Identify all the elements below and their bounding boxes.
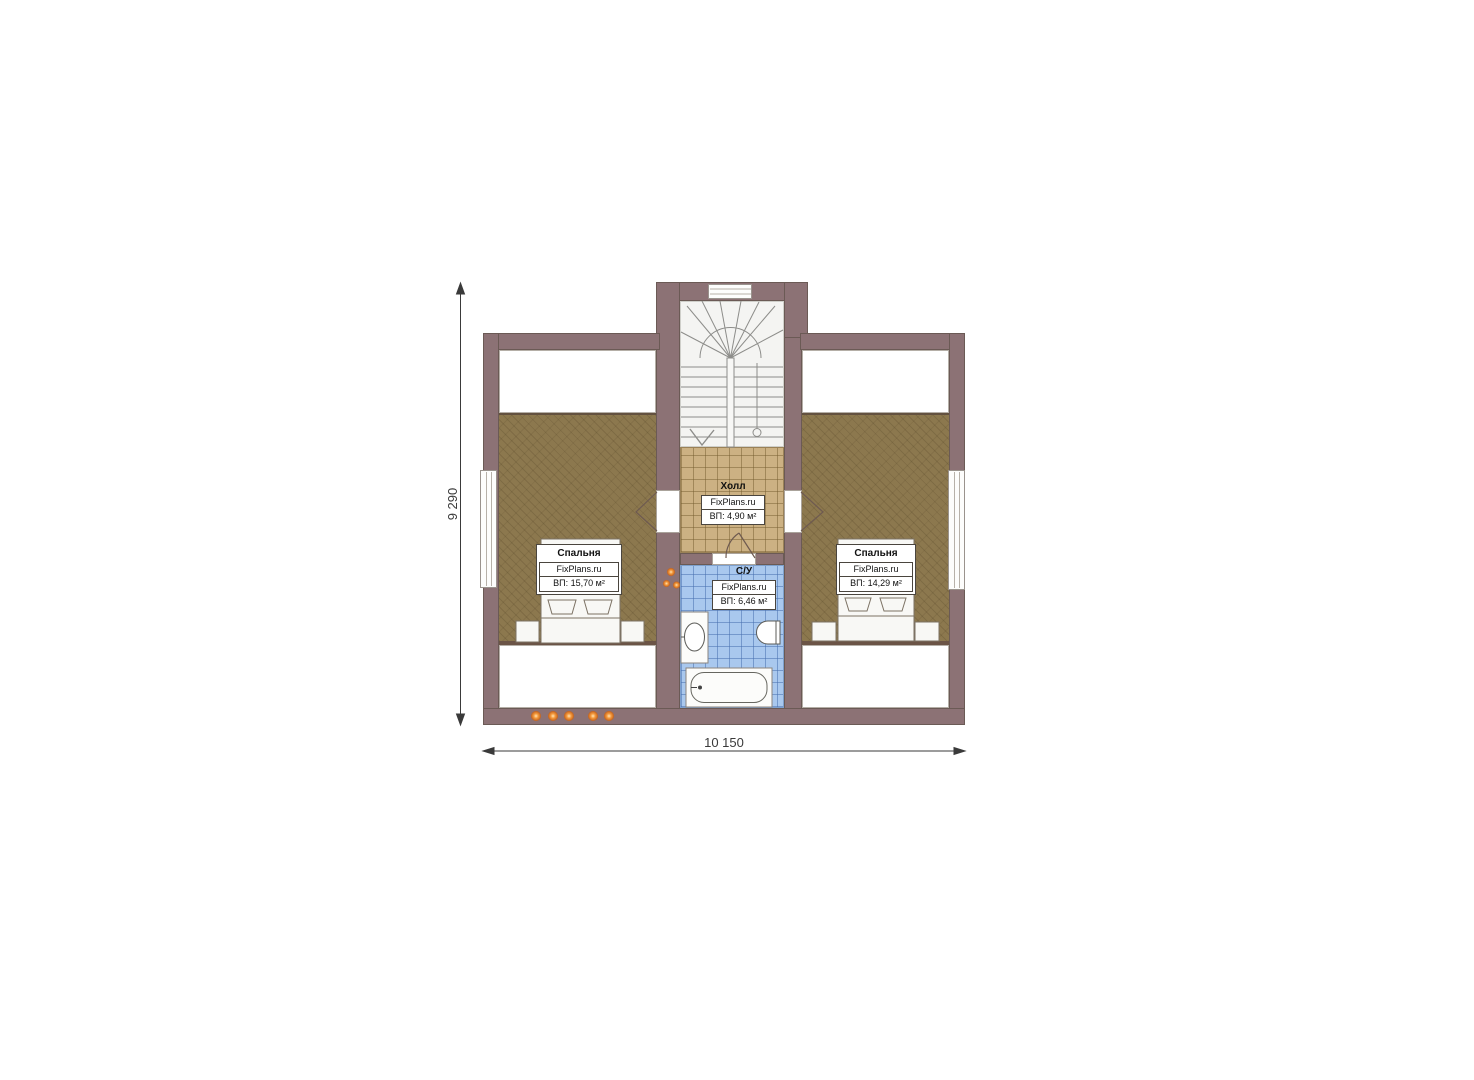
wall-top-right [800, 333, 965, 350]
attic-zone-right-top [802, 350, 949, 413]
attic-zone-left-top [499, 350, 656, 413]
label-box: FixPlans.ru ВП: 6,46 м² [712, 580, 776, 610]
bedroom-left-label: Спальня FixPlans.ru ВП: 15,70 м² [536, 544, 622, 595]
door-opening-bathroom [712, 553, 756, 565]
room-name: Холл [701, 480, 765, 495]
dimension-width-label: 10 150 [694, 735, 754, 750]
label-box: FixPlans.ru ВП: 4,90 м² [701, 495, 765, 525]
bedroom-left-floor [499, 413, 656, 645]
wall-bottom [483, 708, 965, 725]
stairwell-floor [680, 301, 784, 447]
window-left [480, 470, 497, 588]
floor-plan-canvas: Спальня FixPlans.ru ВП: 15,70 м² Спальня… [0, 0, 1474, 1080]
room-name: С/У [712, 565, 776, 580]
label-box: FixPlans.ru ВП: 14,29 м² [839, 562, 913, 592]
dimension-height-label: 9 290 [445, 480, 459, 528]
area-label: ВП: 4,90 м² [702, 509, 764, 523]
window-right [948, 470, 965, 590]
brand-label: FixPlans.ru [840, 563, 912, 576]
area-label: ВП: 6,46 м² [713, 594, 775, 608]
brand-label: FixPlans.ru [540, 563, 618, 576]
bathroom-label: С/У FixPlans.ru ВП: 6,46 м² [712, 565, 776, 610]
attic-zone-left-bottom [499, 645, 656, 708]
window-stairwell-top [708, 284, 752, 299]
label-box: FixPlans.ru ВП: 15,70 м² [539, 562, 619, 592]
room-name: Спальня [539, 547, 619, 562]
door-opening-bedroom-right [784, 490, 802, 533]
door-opening-bedroom-left [656, 490, 680, 533]
area-label: ВП: 15,70 м² [540, 576, 618, 590]
room-name: Спальня [839, 547, 913, 562]
hall-label: Холл FixPlans.ru ВП: 4,90 м² [701, 480, 765, 525]
brand-label: FixPlans.ru [702, 496, 764, 509]
bedroom-right-label: Спальня FixPlans.ru ВП: 14,29 м² [836, 544, 916, 595]
attic-zone-right-bottom [802, 645, 949, 708]
bedroom-right-floor [802, 413, 949, 645]
area-label: ВП: 14,29 м² [840, 576, 912, 590]
wall-top-left [483, 333, 660, 350]
wall-stair-tower-right-post [784, 282, 808, 338]
brand-label: FixPlans.ru [713, 581, 775, 594]
